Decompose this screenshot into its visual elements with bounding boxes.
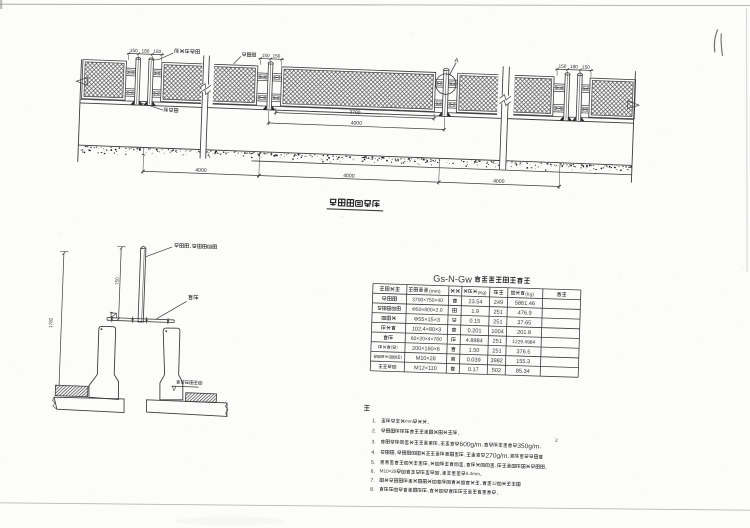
svg-text:502: 502 — [492, 368, 502, 374]
svg-text:200×160×6: 200×160×6 — [412, 346, 440, 353]
svg-text:6.: 6. — [371, 469, 375, 475]
svg-text:376.5: 376.5 — [516, 349, 530, 355]
svg-text:350g/m: 350g/m — [517, 443, 540, 451]
svg-text:m: m — [476, 471, 480, 476]
svg-text:750: 750 — [114, 277, 119, 285]
svg-text:5861.46: 5861.46 — [515, 301, 535, 308]
svg-text:4.: 4. — [371, 450, 375, 456]
svg-text:60×20×4×780: 60×20×4×780 — [411, 336, 442, 343]
svg-text:Φ50×800×2.0: Φ50×800×2.0 — [412, 307, 443, 314]
svg-text:150: 150 — [262, 53, 270, 58]
svg-text:251: 251 — [493, 310, 503, 316]
svg-text:0.17: 0.17 — [468, 367, 479, 373]
svg-text:(Kg): (Kg) — [525, 291, 534, 296]
svg-text:251: 251 — [492, 339, 502, 345]
svg-text:4000: 4000 — [351, 120, 363, 126]
svg-text:M12×110: M12×110 — [414, 365, 437, 372]
svg-text:180: 180 — [142, 48, 150, 53]
svg-text:1229.4984: 1229.4984 — [512, 339, 536, 346]
svg-text:Gs-N-Gw: Gs-N-Gw — [433, 273, 472, 284]
svg-text:8.: 8. — [370, 487, 374, 493]
svg-text:600g/m: 600g/m — [459, 441, 482, 449]
svg-text:1.9: 1.9 — [471, 309, 479, 315]
svg-text:M10×28: M10×28 — [416, 356, 436, 363]
svg-text:476.9: 476.9 — [518, 310, 532, 316]
svg-text:m: m — [409, 419, 413, 424]
svg-text:0.15: 0.15 — [469, 319, 480, 325]
svg-text:1782: 1782 — [48, 317, 53, 328]
svg-text:1.50: 1.50 — [468, 348, 479, 354]
svg-text:7.: 7. — [370, 478, 374, 484]
svg-text:2.: 2. — [372, 428, 376, 434]
svg-text:4.8984: 4.8984 — [466, 338, 483, 345]
svg-text:(Kg): (Kg) — [478, 290, 487, 295]
svg-text:150: 150 — [153, 49, 161, 54]
svg-text:3.: 3. — [371, 439, 375, 445]
svg-text:150: 150 — [559, 64, 567, 69]
svg-text:251: 251 — [493, 319, 503, 325]
svg-text:0.201: 0.201 — [467, 328, 481, 334]
svg-text:4000: 4000 — [195, 168, 207, 174]
svg-text:0.039: 0.039 — [467, 357, 481, 363]
svg-text:): ) — [401, 355, 402, 359]
svg-text:251: 251 — [492, 348, 502, 354]
svg-text:3700: 3700 — [349, 110, 361, 116]
svg-text:201.8: 201.8 — [517, 330, 531, 336]
svg-text:3700×750×40: 3700×750×40 — [412, 297, 443, 304]
svg-text:85.34: 85.34 — [516, 369, 530, 375]
svg-text:1.: 1. — [372, 418, 376, 424]
svg-text:37.65: 37.65 — [517, 320, 531, 326]
svg-text:249: 249 — [494, 300, 504, 306]
svg-text:4000: 4000 — [493, 179, 505, 185]
svg-text:1004: 1004 — [491, 329, 504, 335]
svg-text:(mm): (mm) — [429, 289, 441, 295]
svg-text:102.4×80×3: 102.4×80×3 — [412, 326, 442, 333]
svg-text:Φ55×15×3: Φ55×15×3 — [414, 317, 440, 324]
svg-text:23.54: 23.54 — [468, 299, 482, 305]
svg-text:5.: 5. — [371, 460, 375, 466]
svg-text:4000: 4000 — [343, 173, 355, 179]
svg-text:3982: 3982 — [490, 358, 503, 364]
svg-text:150: 150 — [130, 48, 138, 53]
svg-text:155.3: 155.3 — [516, 359, 530, 365]
svg-text:180: 180 — [570, 64, 578, 69]
svg-text:150: 150 — [582, 64, 590, 69]
svg-text:270g/m: 270g/m — [485, 452, 508, 460]
svg-text:150: 150 — [272, 53, 280, 58]
